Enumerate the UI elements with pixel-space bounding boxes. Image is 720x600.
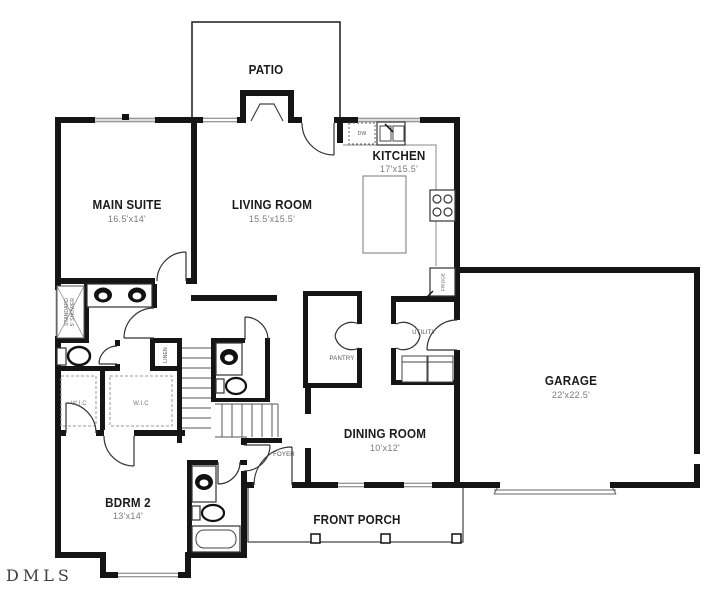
- room-dims-living-room: 15.5'x15.5': [249, 214, 295, 224]
- label-shower-line2: 5' SHOWER: [70, 298, 76, 327]
- walls: [55, 117, 700, 578]
- double-vanity-icon: [87, 284, 152, 307]
- label-utility: UTILITY: [412, 330, 436, 336]
- room-label-living-room: LIVING ROOM: [232, 198, 312, 212]
- toilet-icon: [57, 347, 90, 365]
- room-label-patio: PATIO: [249, 63, 284, 77]
- room-dims-dining-room: 10'x12': [370, 443, 400, 453]
- label-shower: STANDARD 5' SHOWER: [64, 298, 76, 327]
- label-wic-1: W.I.C: [71, 401, 87, 407]
- watermark-dmls: DMLS: [6, 566, 73, 585]
- label-pantry: PANTRY: [330, 356, 355, 362]
- stove-icon: [430, 190, 455, 221]
- label-fridge: FRIDGE: [441, 273, 446, 291]
- room-label-main-suite: MAIN SUITE: [92, 198, 161, 212]
- room-label-garage: GARAGE: [545, 374, 597, 388]
- label-linen: LINEN: [163, 347, 169, 363]
- powder-room-fixtures: [216, 343, 246, 394]
- room-dims-bdrm2: 13'x14': [113, 511, 143, 521]
- kitchen-sink-icon: [377, 122, 405, 145]
- room-dims-garage: 22'x22.5': [552, 390, 590, 400]
- floorplan-drawing: [0, 0, 720, 600]
- label-dishwasher: DW: [358, 131, 367, 137]
- room-label-foyer: FOYER: [273, 452, 295, 458]
- washer-dryer-icons: [402, 356, 453, 382]
- garage-door: [494, 483, 616, 494]
- bathtub-icon: [192, 526, 240, 552]
- room-dims-main-suite: 16.5'x14': [108, 214, 146, 224]
- room-label-dining-room: DINING ROOM: [344, 427, 426, 441]
- room-label-kitchen: KITCHEN: [373, 149, 426, 163]
- floor-plan: PATIO MAIN SUITE 16.5'x14' LIVING ROOM 1…: [0, 0, 720, 600]
- room-label-front-porch: FRONT PORCH: [313, 513, 400, 527]
- room-label-bdrm2: BDRM 2: [105, 496, 151, 510]
- label-wic-2: W.I.C: [133, 401, 149, 407]
- room-dims-kitchen: 17'x15.5': [380, 164, 418, 174]
- fireplace: [240, 90, 294, 123]
